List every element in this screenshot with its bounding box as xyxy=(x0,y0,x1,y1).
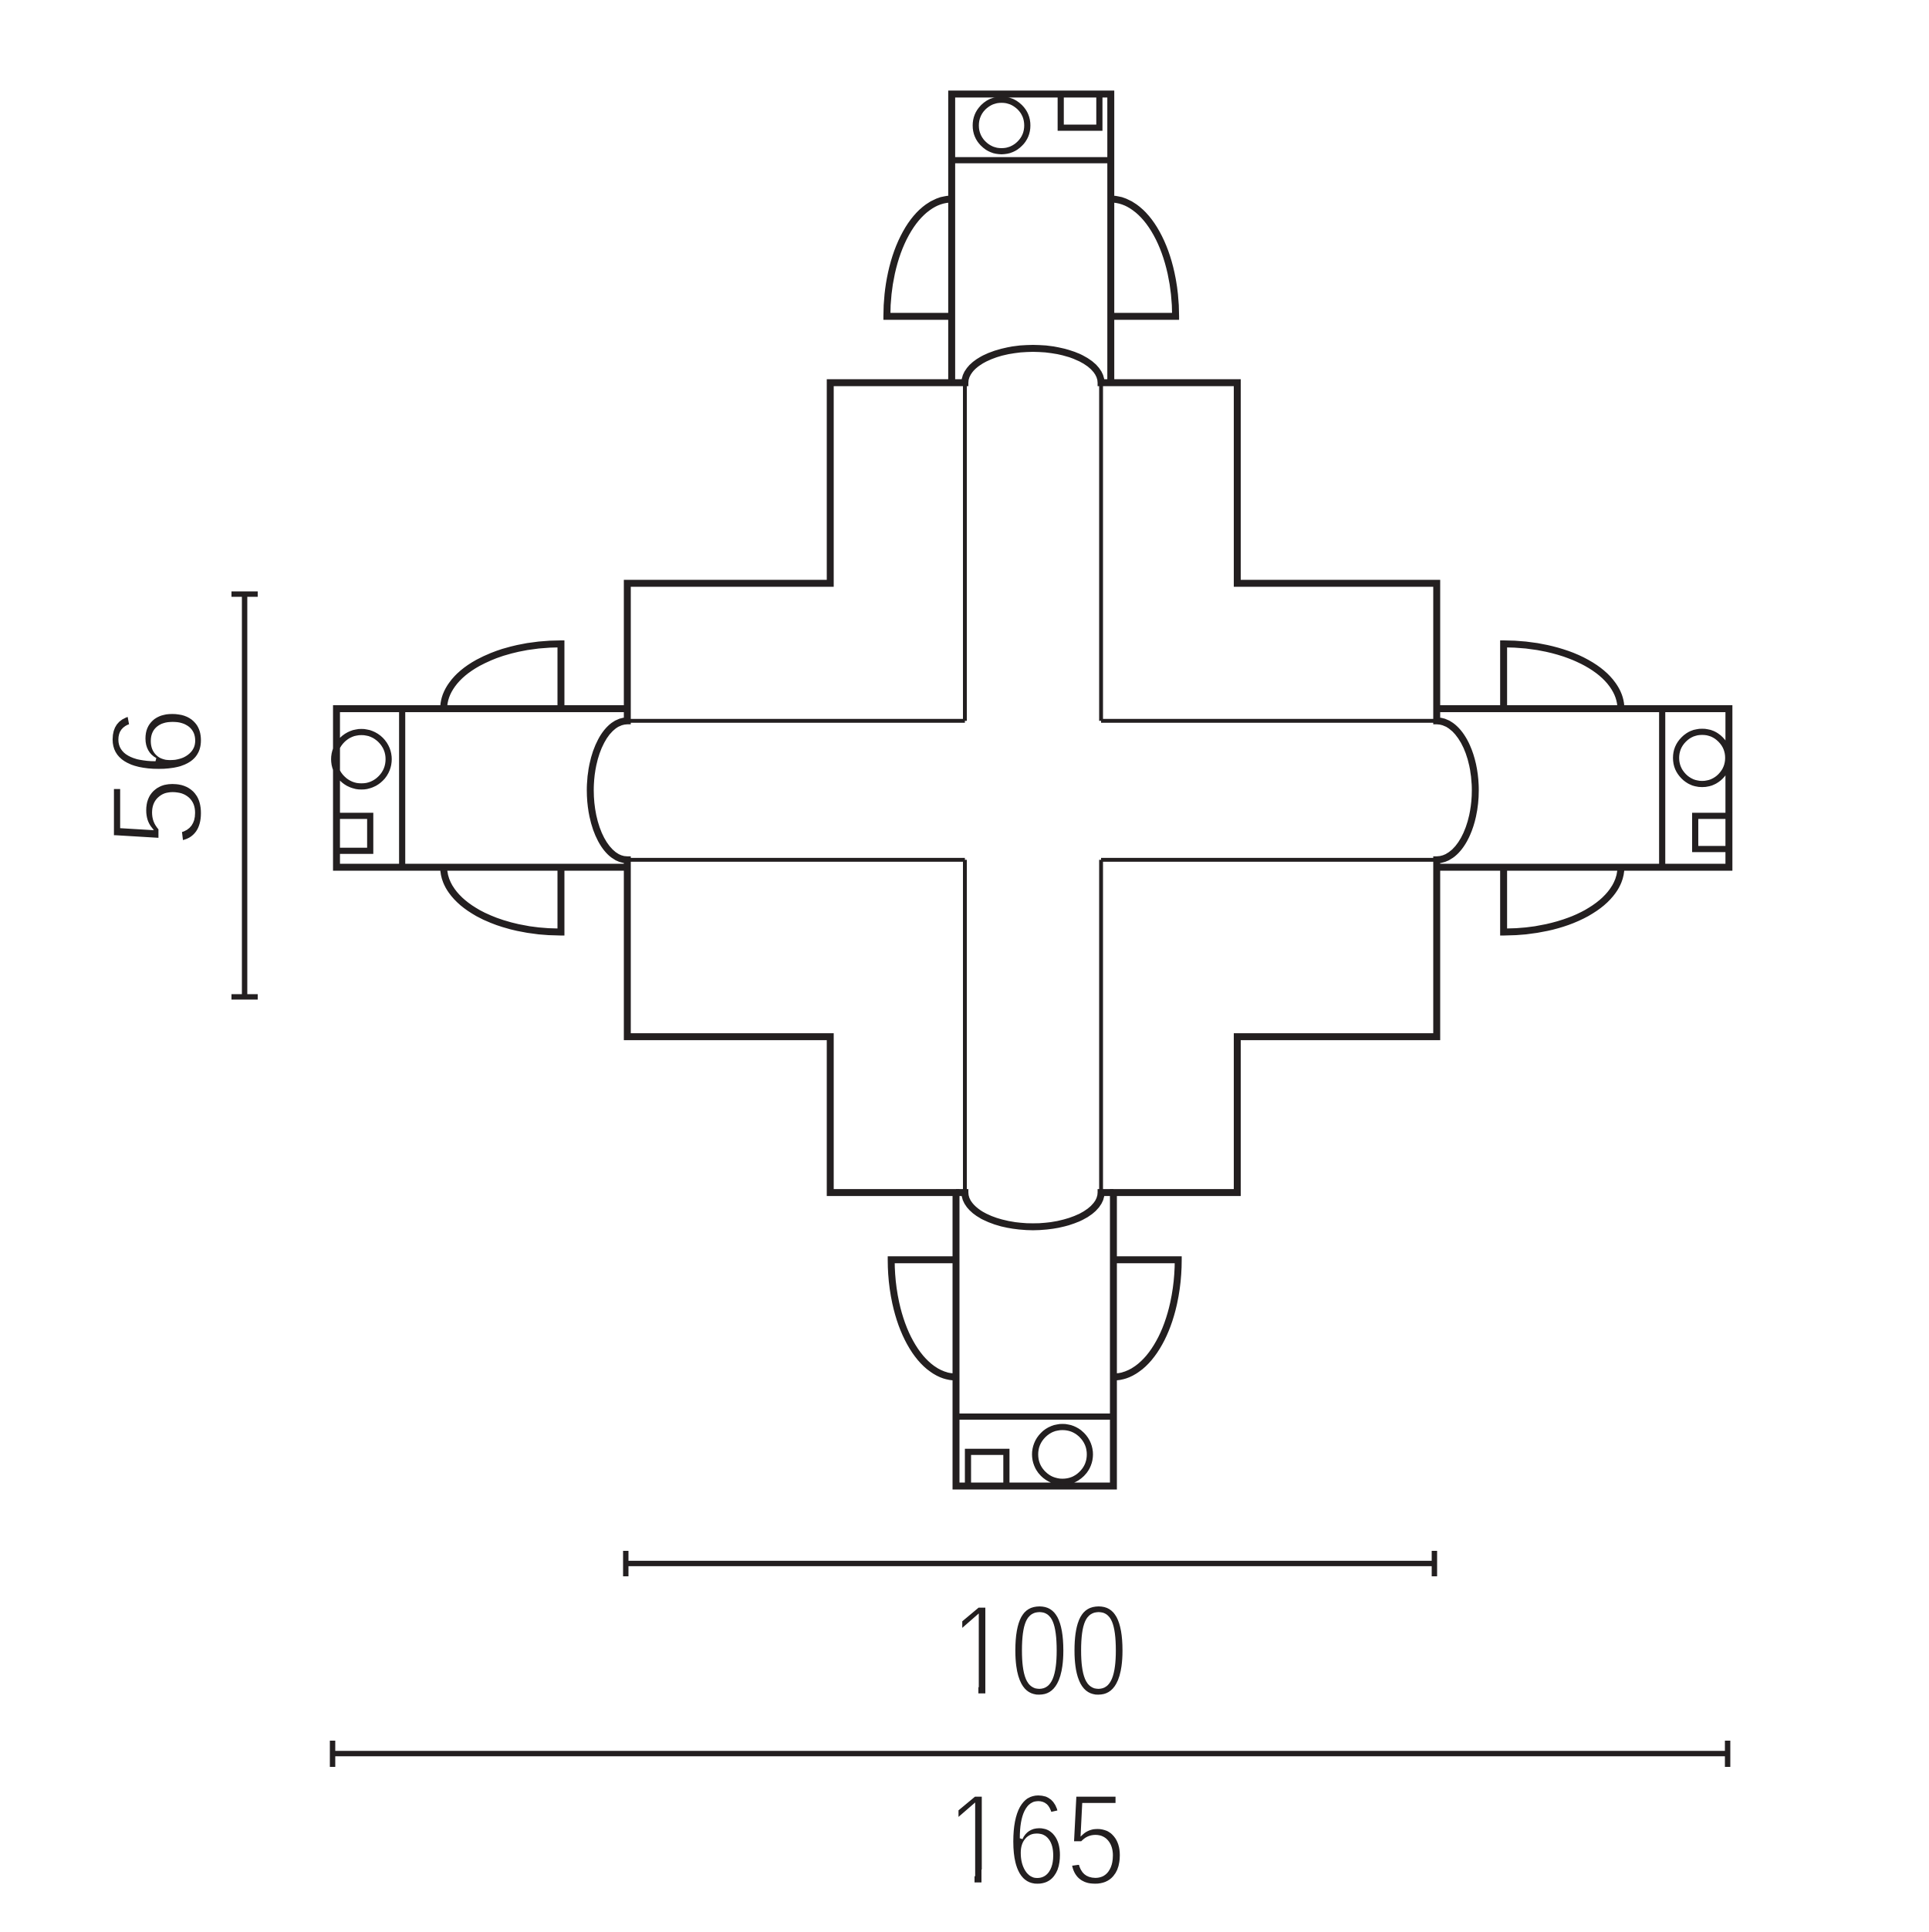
svg-text:165: 165 xyxy=(947,1767,1126,1912)
svg-text:56: 56 xyxy=(84,707,229,847)
svg-text:100: 100 xyxy=(951,1578,1128,1723)
